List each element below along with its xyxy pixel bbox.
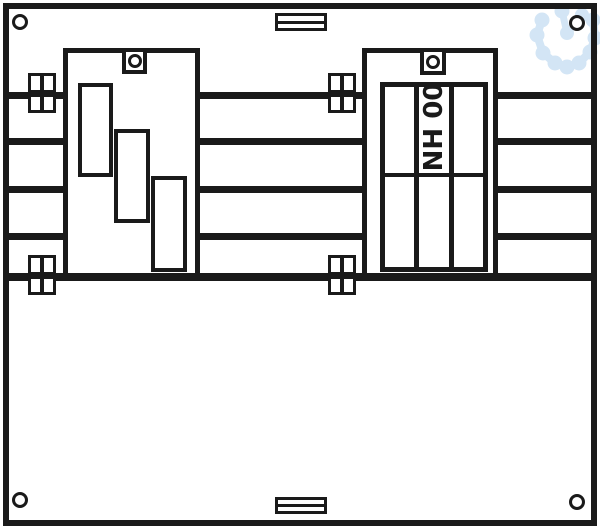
clamp-cell (44, 76, 53, 90)
fuse-grid-cell (385, 177, 414, 267)
fixing-tab-icon (122, 48, 147, 74)
clamp-cell (31, 97, 40, 111)
flange-slot (278, 500, 324, 504)
terminal-clamp-icon (328, 73, 356, 113)
clamp-cell (331, 279, 340, 293)
clamp-cell (331, 258, 340, 272)
clamp-cell (44, 258, 53, 272)
fuse-grid-cell (419, 177, 448, 267)
clamp-cell (44, 97, 53, 111)
clamp-cell (44, 279, 53, 293)
flange-slot (278, 16, 324, 21)
clamp-cell (31, 279, 40, 293)
cover-window-3 (151, 176, 187, 272)
flange-slot (278, 507, 324, 511)
fixing-tab-icon (420, 48, 446, 75)
fixing-hole-icon (426, 55, 440, 69)
clamp-cell (31, 258, 40, 272)
cover-window-1 (78, 83, 113, 177)
clamp-cell (331, 76, 340, 90)
mounting-hole-icon (569, 494, 585, 510)
terminal-clamp-icon (28, 255, 56, 295)
flange-slot (278, 24, 324, 29)
clamp-cell (344, 76, 353, 90)
terminal-clamp-icon (328, 255, 356, 295)
fuse-grid-cell (454, 177, 483, 267)
clamp-cell (344, 97, 353, 111)
clamp-cell (344, 279, 353, 293)
clamp-cell (31, 76, 40, 90)
panel-technical-drawing: NH 00 (0, 0, 600, 527)
cable-flange-icon-top (275, 13, 327, 31)
mounting-hole-icon (12, 492, 28, 508)
clamp-cell (344, 258, 353, 272)
clamp-cell (331, 97, 340, 111)
fuse-size-label: NH 00 (421, 83, 447, 172)
fuse-grid-cell (454, 87, 483, 173)
mounting-hole-icon (569, 15, 585, 31)
fuse-grid-cell (385, 87, 414, 173)
cable-flange-icon-bottom (275, 497, 327, 514)
cover-window-2 (114, 129, 150, 223)
fixing-hole-icon (128, 54, 142, 68)
terminal-clamp-icon (28, 73, 56, 113)
mounting-hole-icon (12, 14, 28, 30)
